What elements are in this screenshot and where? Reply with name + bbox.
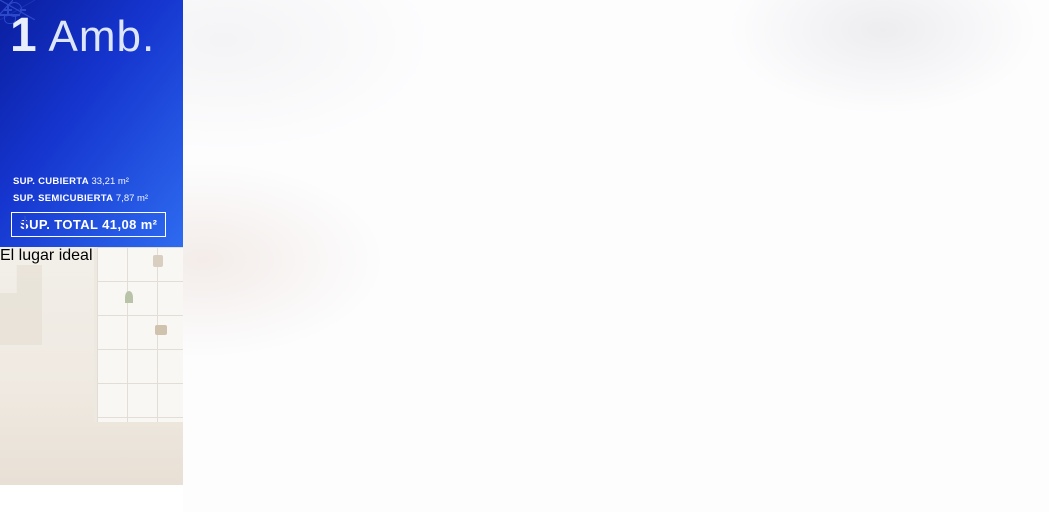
- sidebar: 1 Amb. SUP. CUBIERTA 33,21 m² SUP. SEMIC…: [0, 0, 183, 512]
- stairs-shape: [0, 265, 42, 345]
- shelf-box: [155, 325, 167, 335]
- page: 1 Amb. SUP. CUBIERTA 33,21 m² SUP. SEMIC…: [0, 0, 1049, 512]
- drain-symbol: [21, 221, 29, 223]
- lifestyle-photo: El lugar ideal para: [0, 247, 183, 485]
- title-word: Amb.: [38, 12, 156, 61]
- brand-panel: 1 Amb. SUP. CUBIERTA 33,21 m² SUP. SEMIC…: [0, 0, 183, 247]
- shelf-plant: [125, 291, 133, 303]
- wood-floor: [0, 415, 183, 485]
- shelf-decor: [153, 255, 163, 267]
- stat-covered: SUP. CUBIERTA 33,21 m²: [13, 176, 129, 187]
- shelf-unit: [94, 247, 183, 422]
- marble-background: [183, 0, 1049, 512]
- total-area-badge: SUP. TOTAL 41,08 m²: [11, 212, 166, 237]
- stat-semicovered: SUP. SEMICUBIERTA 7,87 m²: [13, 193, 148, 204]
- drain-symbol: [24, 216, 26, 230]
